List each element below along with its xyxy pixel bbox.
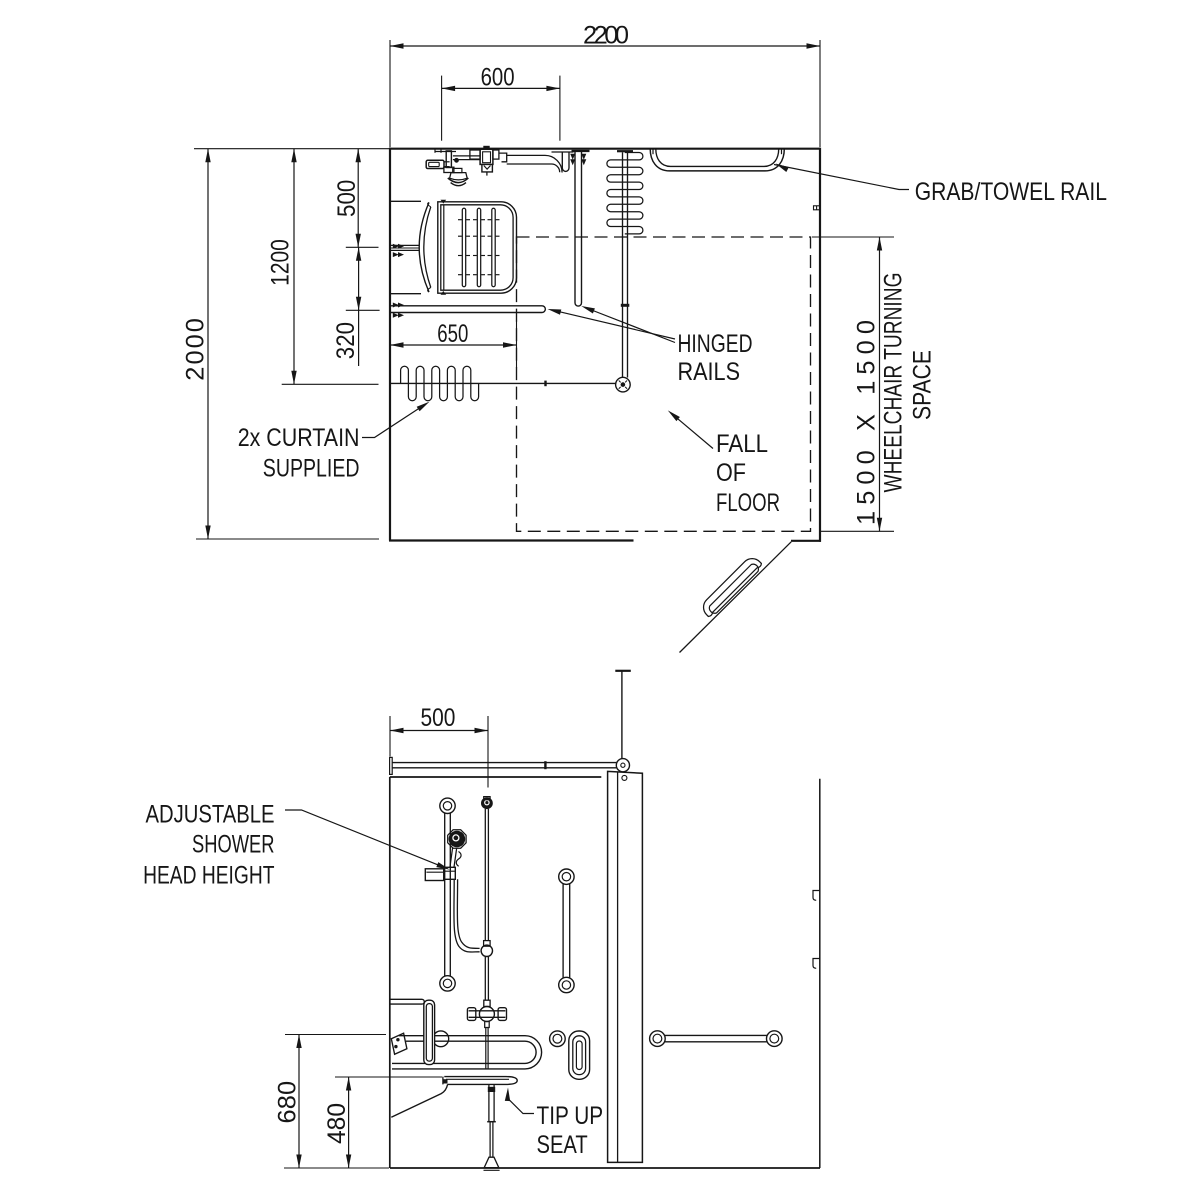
svg-text:OF: OF	[716, 459, 746, 487]
svg-text:SPACE: SPACE	[908, 350, 936, 420]
svg-text:2x CURTAIN: 2x CURTAIN	[238, 424, 360, 452]
svg-text:500: 500	[333, 180, 361, 217]
svg-text:HEAD HEIGHT: HEAD HEIGHT	[143, 862, 274, 890]
svg-text:HINGED: HINGED	[678, 330, 753, 358]
svg-text:RAILS: RAILS	[678, 358, 741, 386]
svg-text:WHEELCHAIR TURNING: WHEELCHAIR TURNING	[880, 273, 908, 493]
svg-text:FALL: FALL	[716, 430, 768, 458]
svg-text:600: 600	[481, 64, 515, 92]
svg-text:1200: 1200	[267, 239, 295, 286]
svg-text:480: 480	[323, 1103, 351, 1144]
svg-text:2200: 2200	[583, 22, 629, 50]
svg-text:ADJUSTABLE: ADJUSTABLE	[146, 801, 275, 829]
svg-text:650: 650	[437, 320, 468, 348]
svg-text:500: 500	[420, 704, 455, 732]
svg-text:1500 X 1500: 1500 X 1500	[852, 320, 880, 525]
svg-text:SEAT: SEAT	[537, 1131, 588, 1159]
svg-text:SUPPLIED: SUPPLIED	[263, 455, 360, 483]
svg-text:320: 320	[332, 322, 360, 359]
svg-text:680: 680	[274, 1081, 302, 1124]
svg-text:TIP UP: TIP UP	[537, 1102, 604, 1130]
svg-text:SHOWER: SHOWER	[192, 831, 275, 859]
svg-text:FLOOR: FLOOR	[716, 489, 780, 517]
svg-text:GRAB/TOWEL RAIL: GRAB/TOWEL RAIL	[915, 178, 1107, 206]
